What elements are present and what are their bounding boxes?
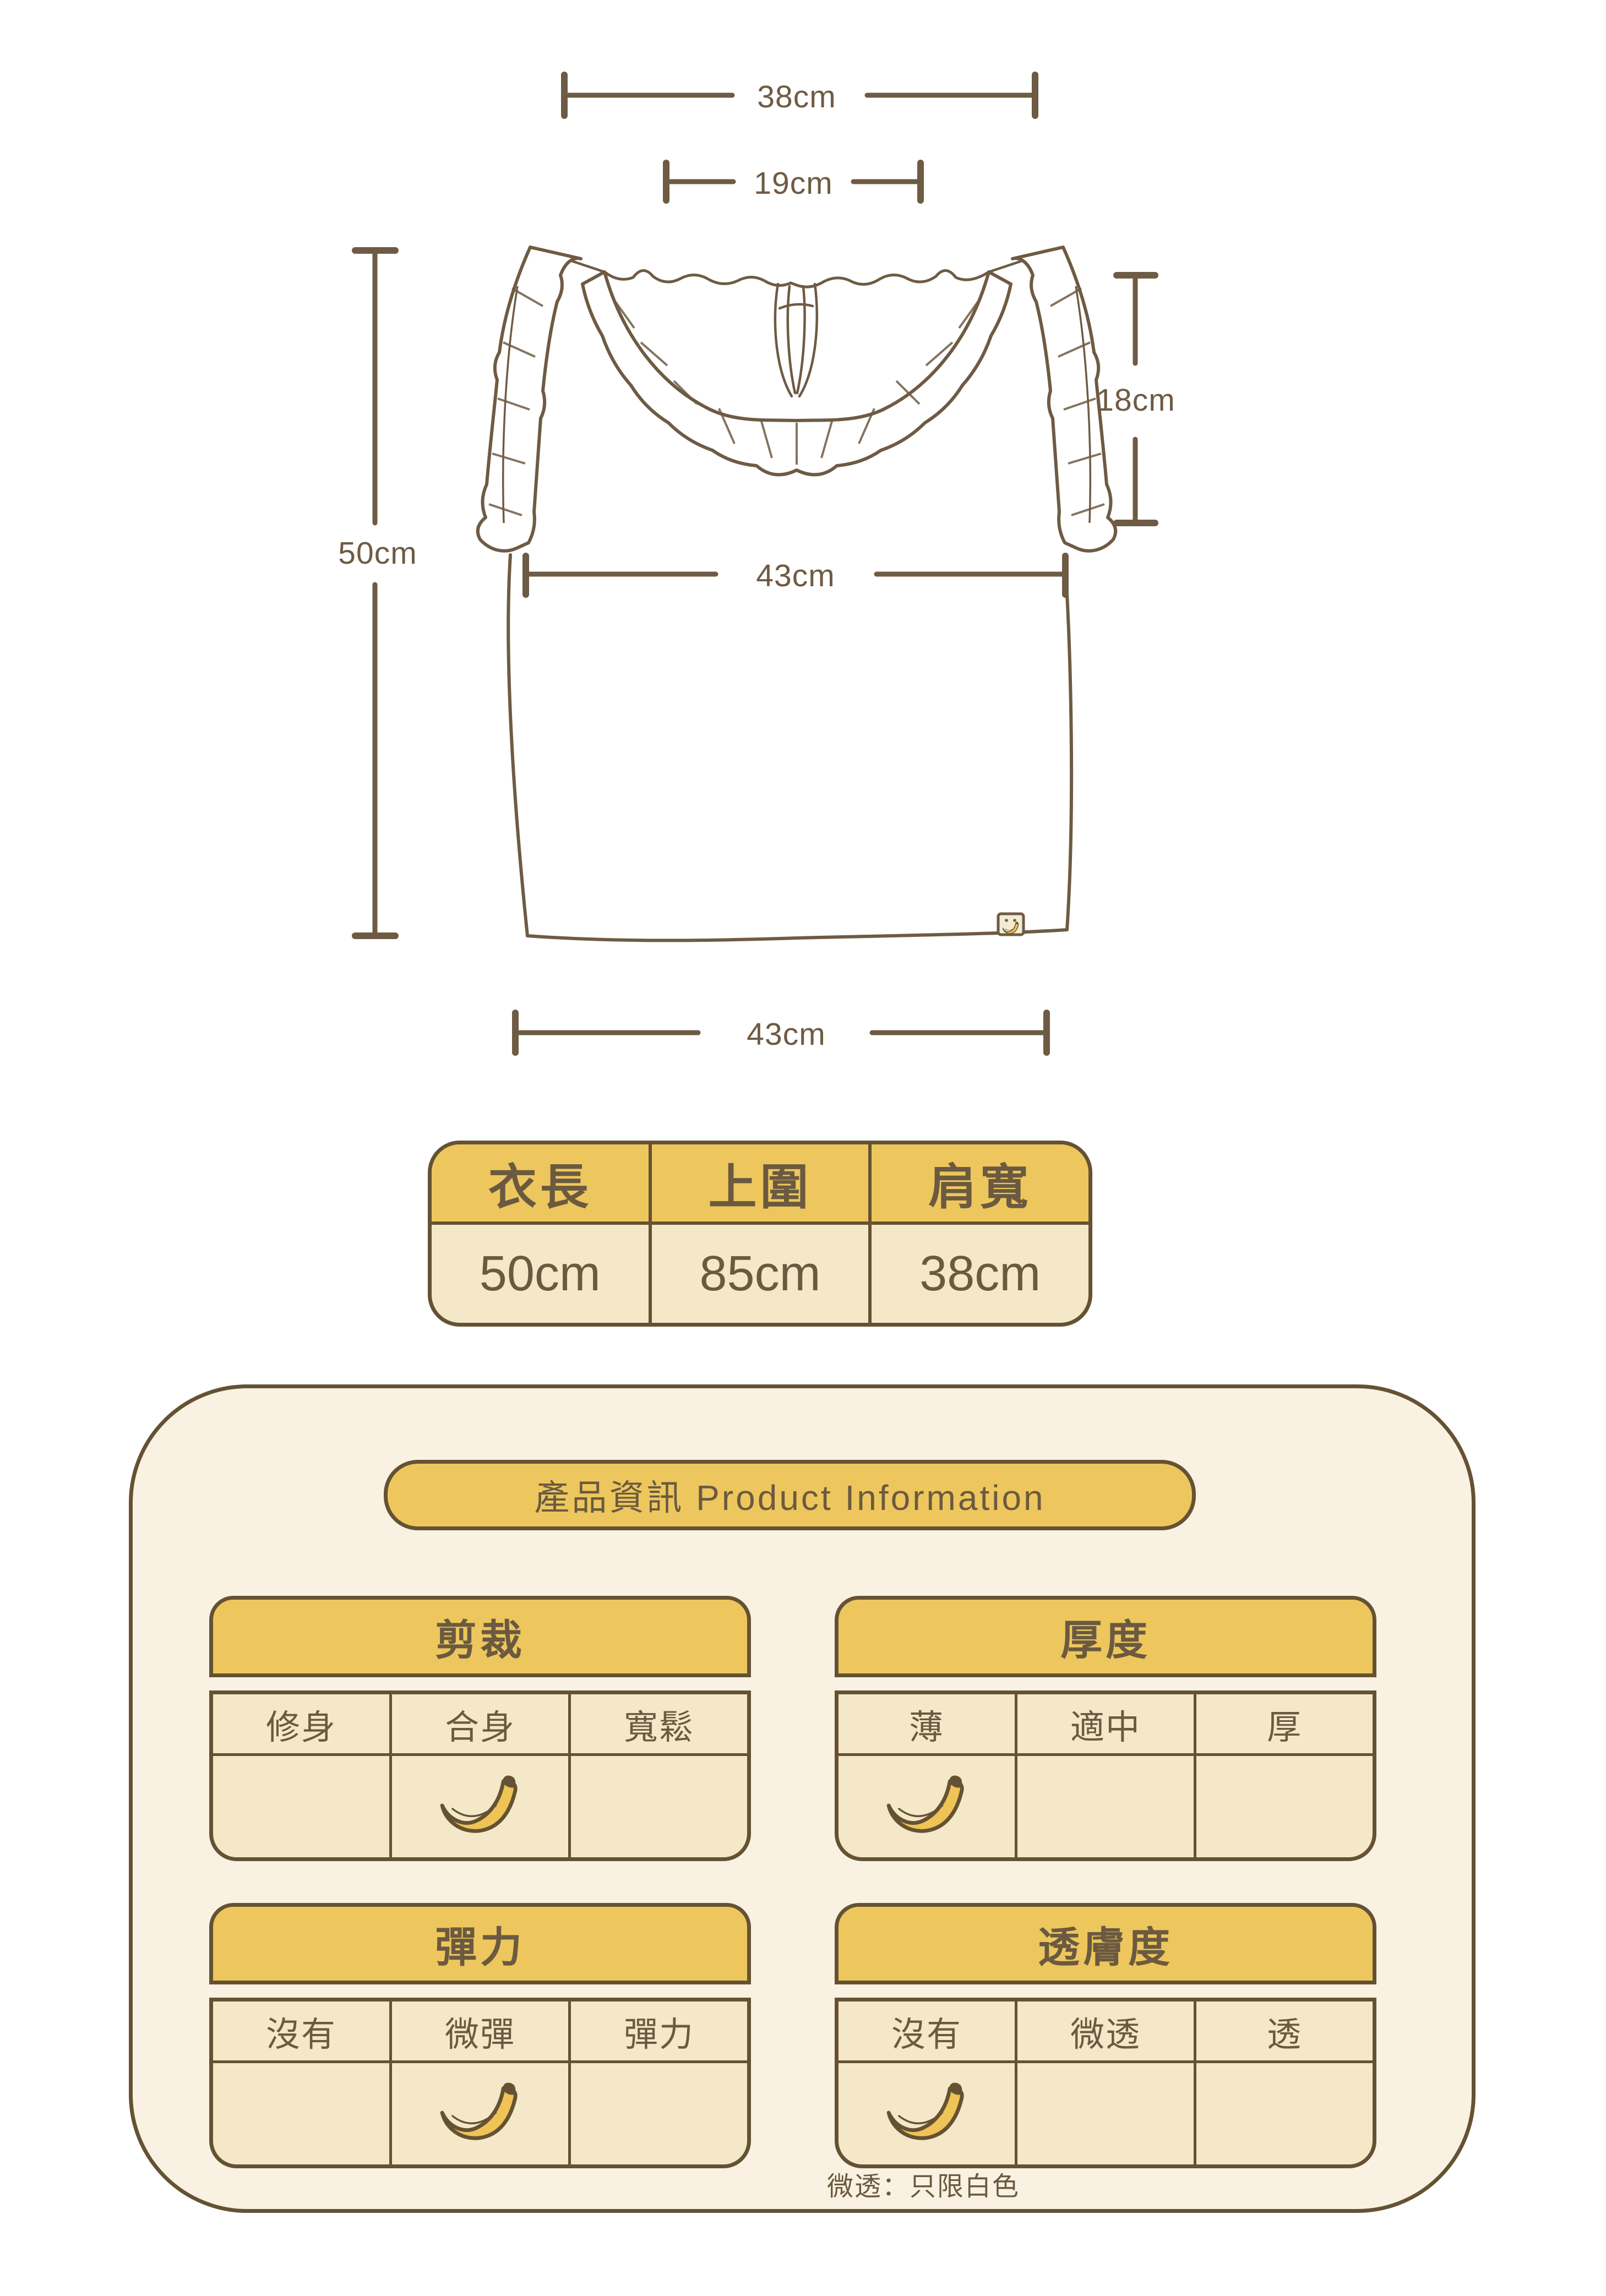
armhole-label: 18cm xyxy=(1096,382,1175,418)
option-mark-cell xyxy=(1194,1756,1373,1857)
option-label: 沒有 xyxy=(213,2001,389,2060)
size-table-header-bust: 上圍 xyxy=(649,1144,869,1221)
size-table-header-shoulder: 肩寬 xyxy=(868,1144,1088,1221)
hem-tag xyxy=(998,914,1024,935)
chest-label: 43cm xyxy=(756,558,835,594)
option-mark-cell xyxy=(213,2063,389,2164)
attribute-table-thickness-title: 厚度 xyxy=(835,1596,1376,1677)
attribute-table-stretch-title: 彈力 xyxy=(209,1903,751,1984)
attribute-table-sheerness-grid: 沒有 微透 透 xyxy=(835,1998,1376,2168)
attribute-table-cut-title: 剪裁 xyxy=(209,1596,751,1677)
size-table-header-length: 衣長 xyxy=(432,1144,649,1221)
hem-label: 43cm xyxy=(747,1016,825,1052)
option-mark-cell xyxy=(1015,1756,1194,1857)
attribute-table-sheerness: 透膚度 沒有 微透 透 xyxy=(835,1903,1376,2168)
banana-icon xyxy=(880,1774,973,1839)
option-mark-cell xyxy=(839,2063,1015,2164)
size-table-header-row: 衣長 上圍 肩寬 xyxy=(432,1144,1088,1225)
option-mark-cell xyxy=(568,1756,747,1857)
option-label: 適中 xyxy=(1015,1694,1194,1753)
attribute-table-stretch: 彈力 沒有 微彈 彈力 xyxy=(209,1903,751,2168)
option-label: 厚 xyxy=(1194,1694,1373,1753)
attribute-table-sheerness-title: 透膚度 xyxy=(835,1903,1376,1984)
option-mark-cell xyxy=(1194,2063,1373,2164)
option-label: 微彈 xyxy=(389,2001,568,2060)
option-mark-cell xyxy=(389,1756,568,1857)
size-table-value-bust: 85cm xyxy=(649,1225,869,1323)
option-label: 薄 xyxy=(839,1694,1015,1753)
product-info-title: 產品資訊 Product Information xyxy=(384,1460,1196,1530)
option-label: 透 xyxy=(1194,2001,1373,2060)
attribute-table-thickness-grid: 薄 適中 厚 xyxy=(835,1690,1376,1861)
size-table-value-shoulder: 38cm xyxy=(868,1225,1088,1323)
banana-icon xyxy=(880,2081,973,2146)
shoulder-width-label: 38cm xyxy=(757,79,836,115)
size-table-value-length: 50cm xyxy=(432,1225,649,1323)
option-label: 沒有 xyxy=(839,2001,1015,2060)
option-label: 寬鬆 xyxy=(568,1694,747,1753)
option-label: 合身 xyxy=(389,1694,568,1753)
option-mark-cell xyxy=(1015,2063,1194,2164)
option-mark-cell xyxy=(389,2063,568,2164)
attribute-table-stretch-grid: 沒有 微彈 彈力 xyxy=(209,1998,751,2168)
option-label: 彈力 xyxy=(568,2001,747,2060)
attribute-table-cut-grid: 修身 合身 寬鬆 xyxy=(209,1690,751,1861)
neck-ruffle xyxy=(582,272,1011,475)
option-mark-cell xyxy=(568,2063,747,2164)
option-label: 微透 xyxy=(1015,2001,1194,2060)
left-strap-ruffle xyxy=(478,247,581,551)
size-table-value-row: 50cm 85cm 38cm xyxy=(432,1225,1088,1323)
attribute-table-cut: 剪裁 修身 合身 寬鬆 xyxy=(209,1596,751,1861)
attribute-table-thickness: 厚度 薄 適中 厚 xyxy=(835,1596,1376,1861)
option-label: 修身 xyxy=(213,1694,389,1753)
sheerness-note: 微透：只限白色 xyxy=(827,2164,1020,2203)
dimension-lines xyxy=(355,75,1155,1052)
product-spec-sheet: 38cm 19cm 18cm 50cm 43cm 43cm 衣長 上圍 肩寬 5… xyxy=(0,0,1606,2296)
option-mark-cell xyxy=(213,1756,389,1857)
length-label: 50cm xyxy=(338,535,417,571)
option-mark-cell xyxy=(839,1756,1015,1857)
banana-icon xyxy=(434,2081,526,2146)
size-table: 衣長 上圍 肩寬 50cm 85cm 38cm xyxy=(428,1141,1092,1327)
neck-width-label: 19cm xyxy=(754,165,832,201)
banana-icon xyxy=(434,1774,526,1839)
